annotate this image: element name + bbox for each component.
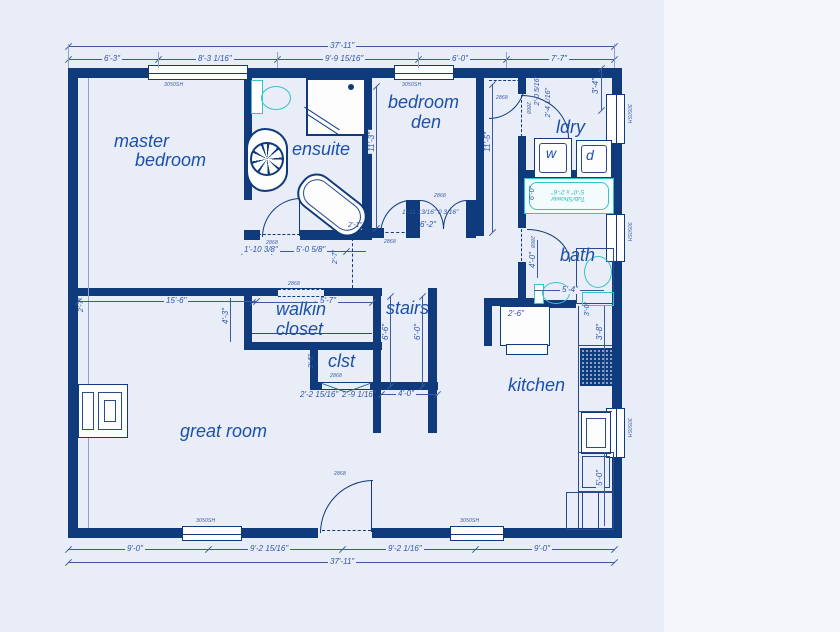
door-dash-bath [521, 229, 522, 261]
tag-window-right-middle: 3050SH [626, 222, 631, 241]
dim-cl1: 2'-5" [308, 352, 315, 370]
washer-label: w [546, 146, 556, 160]
tag-door-entry: 2868 [334, 472, 346, 477]
room-label-ensuite: ensuite [292, 140, 350, 158]
dim-walkin: 5'-7" [318, 297, 338, 305]
opening-walkin-doors [278, 289, 324, 297]
dim-k3: 5'-0" [596, 468, 604, 488]
dim-top-3: 9'-9 15/16" [323, 55, 365, 63]
dim-ensuite-2: 5'-0 5/8" [294, 246, 327, 254]
dim-bath-w: 4'-0" [529, 250, 537, 270]
window-bottom-left [182, 526, 242, 541]
tick [489, 229, 496, 236]
dim-den-height: 11'-3" [368, 130, 376, 154]
opening-bath-door [518, 228, 526, 262]
tag-window-right-upper: 3050SH [626, 104, 631, 123]
window-top-den [394, 65, 454, 80]
dim-top-2: 8'-3 1/16" [196, 55, 234, 63]
floor-plan-canvas: w d Tub/Shower 5'-0" x 2'-6" master bedr… [0, 0, 664, 632]
room-label-den-2: den [411, 113, 441, 131]
dim-bath-l: 5'-4" [560, 286, 580, 294]
tag-door-den: 2868 [384, 240, 396, 245]
dim-top-1: 6'-3" [102, 55, 122, 63]
dim-w43: 4'-3" [222, 306, 230, 326]
door-dash-den [380, 232, 410, 233]
tag-window-top-master: 3050SH [164, 83, 183, 88]
tick [598, 107, 605, 114]
ext-line [506, 52, 507, 68]
window-bottom-right [450, 526, 504, 541]
wall-walkin-south [244, 342, 382, 350]
tag-window-bottom-left: 3050SH [196, 519, 215, 524]
tag-door-bath: 2868 [529, 236, 534, 248]
door-arc-den [380, 200, 411, 235]
window-right-upper [606, 94, 625, 144]
wall-ensuite-south-west [244, 230, 260, 240]
dim-st2: 6'-0" [414, 322, 422, 342]
dim-bottom-3: 9'-2 1/16" [386, 545, 424, 553]
wall-kitchen-corner-v [484, 298, 492, 346]
tag-door-hall: 2868 [496, 96, 508, 101]
dim-den-bottom-3: 2'-1" [346, 222, 364, 229]
kitchen-peninsula-shelf [506, 344, 548, 355]
dim-k1: 3'-0" [584, 300, 591, 318]
fridge-icon [581, 412, 611, 454]
room-label-great-room: great room [180, 422, 267, 440]
wall-stairs-east [428, 288, 437, 433]
room-label-master-2: bedroom [135, 151, 206, 169]
tag-door-den-closet: 2868 [434, 194, 446, 199]
dim-bottom-total: 37'-11" [328, 558, 356, 566]
dim-line-w43 [230, 298, 231, 342]
cabinet-bottom-right [566, 492, 614, 530]
dim-bottom-4: 9'-0" [532, 545, 552, 553]
dim-ensuite-1: 1'-10 3/8" [242, 246, 280, 254]
dash-stair-line [352, 238, 353, 288]
dim-bottom-1: 9'-0" [125, 545, 145, 553]
room-label-master-1: master [114, 132, 169, 150]
room-label-walkin-2: closet [276, 320, 323, 338]
dim-den-bottom-2: 6'-2" [418, 221, 438, 229]
dim-hall-height: 11'-5" [484, 130, 492, 154]
door-leaf-entry [371, 480, 372, 532]
door-leaf-den [409, 200, 410, 234]
dim-cl3: 2'-9 1/16" [340, 391, 378, 399]
room-label-ldry: ldry [556, 118, 585, 136]
tub-shower-label: Tub/Shower 5'-0" x 2'-6" [528, 181, 608, 209]
tub-shower-label-line2: 5'-0" x 2'-6" [552, 188, 585, 195]
dim-top-4: 6'-0" [450, 55, 470, 63]
room-label-den-1: bedroom [388, 93, 459, 111]
dim-st1: 6'-6" [382, 322, 390, 342]
dim-cl2: 2'-2 15/16" [298, 391, 340, 399]
dim-line-den-height [376, 86, 377, 228]
door-arc-ensuite [262, 198, 301, 237]
dim-st3: 4'-0" [396, 390, 416, 398]
tag-door-ensuite: 2868 [266, 241, 278, 246]
wall-den-east [476, 78, 484, 236]
door-dash-ldry [521, 95, 522, 137]
dim-hall15: 15'-6" [164, 297, 188, 305]
dim-win-tr: 3'-4" [592, 76, 600, 96]
wall-hall-15ft [78, 288, 256, 296]
ext-line [614, 44, 615, 68]
dryer-label: d [586, 148, 594, 162]
dim-k2: 3'-8" [596, 322, 604, 342]
tub-shower-label-line1: Tub/Shower [551, 195, 586, 202]
dim-line-k2 [604, 306, 605, 384]
kitchen-counter-div1 [578, 345, 612, 346]
dim-ldry-1: 2'-0 5/16" [534, 74, 541, 108]
fireplace-firebox-inner [104, 400, 116, 422]
dim-den-bottom-1: 1'-11 13/16" 0 3/16" [400, 210, 460, 217]
tag-door-clst: 2868 [330, 374, 342, 379]
dim-top-total: 37'-11" [328, 42, 356, 50]
cabinet-divider2 [598, 492, 599, 528]
dim-w27: 2'-7" [78, 296, 85, 314]
wall-stairs-west [373, 288, 381, 433]
dim-line-st2 [422, 296, 423, 386]
door-arc-entry [320, 480, 373, 533]
toilet-bowl-ensuite-icon [261, 86, 291, 110]
window-top-master [148, 65, 248, 80]
dryer-icon [576, 140, 612, 178]
dim-line-walkin [252, 302, 372, 303]
dim-line-st1 [390, 296, 391, 386]
dim-k4: 2'-6" [506, 310, 526, 318]
extension-line-left [88, 78, 89, 528]
tag-window-right-kitchen: 3050SH [626, 418, 631, 437]
tag-door-walkin: 2868 [288, 282, 300, 287]
dim-line-hall-height [492, 84, 493, 232]
fridge-inner [586, 418, 606, 448]
door-dash-ensuite [258, 234, 300, 235]
dim-den-bottom-4: 2'-7" [332, 248, 339, 266]
dim-tub-side: 6'-0" [529, 184, 536, 202]
room-label-clst: clst [328, 352, 355, 370]
dim-top-5: 7'-7" [549, 55, 569, 63]
ext-line [418, 52, 419, 68]
wall-walkin-west [244, 288, 252, 350]
pillar-den-closet-east [466, 200, 476, 238]
dryer-inner [581, 145, 607, 173]
dim-bottom-2: 9'-2 15/16" [248, 545, 290, 553]
door-dash-entry [322, 530, 371, 531]
tick [611, 546, 618, 553]
room-label-bath: bath [560, 246, 595, 264]
dim-ldry-2: 2'-4 1/16" [545, 86, 552, 120]
tag-window-bottom-right: 3050SH [460, 519, 479, 524]
shower-drain-icon [348, 84, 354, 90]
ext-line [158, 52, 159, 68]
ext-line [68, 44, 69, 68]
tick [611, 559, 618, 566]
dim-line-k3 [604, 452, 605, 526]
dim-line-bath-w [537, 240, 538, 278]
tag-door-ldry: 2868 [525, 102, 530, 114]
tag-window-top-den: 3050SH [402, 83, 421, 88]
vanity-sink-swirl-icon [250, 142, 284, 176]
room-label-kitchen: kitchen [508, 376, 565, 394]
stove-icon [580, 348, 614, 386]
cabinet-divider1 [582, 492, 583, 528]
fireplace-side [82, 392, 94, 430]
dim-line-win-tr [601, 68, 602, 110]
ext-line [277, 52, 278, 68]
